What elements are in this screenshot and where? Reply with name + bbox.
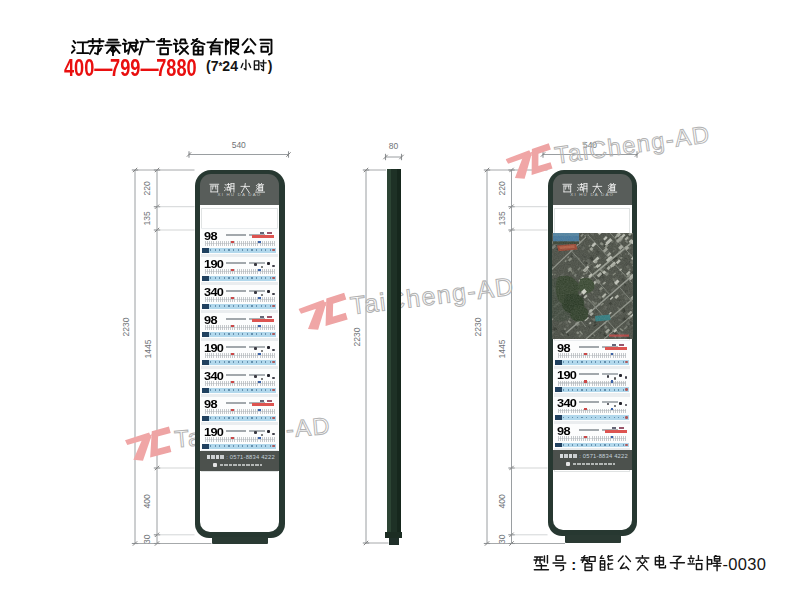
svg-text:220: 220 <box>497 181 507 195</box>
svg-text:220: 220 <box>143 181 153 195</box>
svg-text:135: 135 <box>143 211 153 225</box>
svg-text:30: 30 <box>497 534 507 544</box>
svg-text:540: 540 <box>232 140 246 150</box>
svg-text:135: 135 <box>497 211 507 225</box>
svg-text:30: 30 <box>143 534 153 544</box>
svg-text:80: 80 <box>389 141 399 151</box>
svg-text:400: 400 <box>143 494 153 508</box>
svg-text:2230: 2230 <box>473 317 483 336</box>
svg-text:1445: 1445 <box>497 339 507 358</box>
svg-text:400: 400 <box>497 494 507 508</box>
svg-text:2230: 2230 <box>352 327 362 346</box>
svg-text:1445: 1445 <box>143 339 153 358</box>
svg-text:2230: 2230 <box>121 317 131 336</box>
